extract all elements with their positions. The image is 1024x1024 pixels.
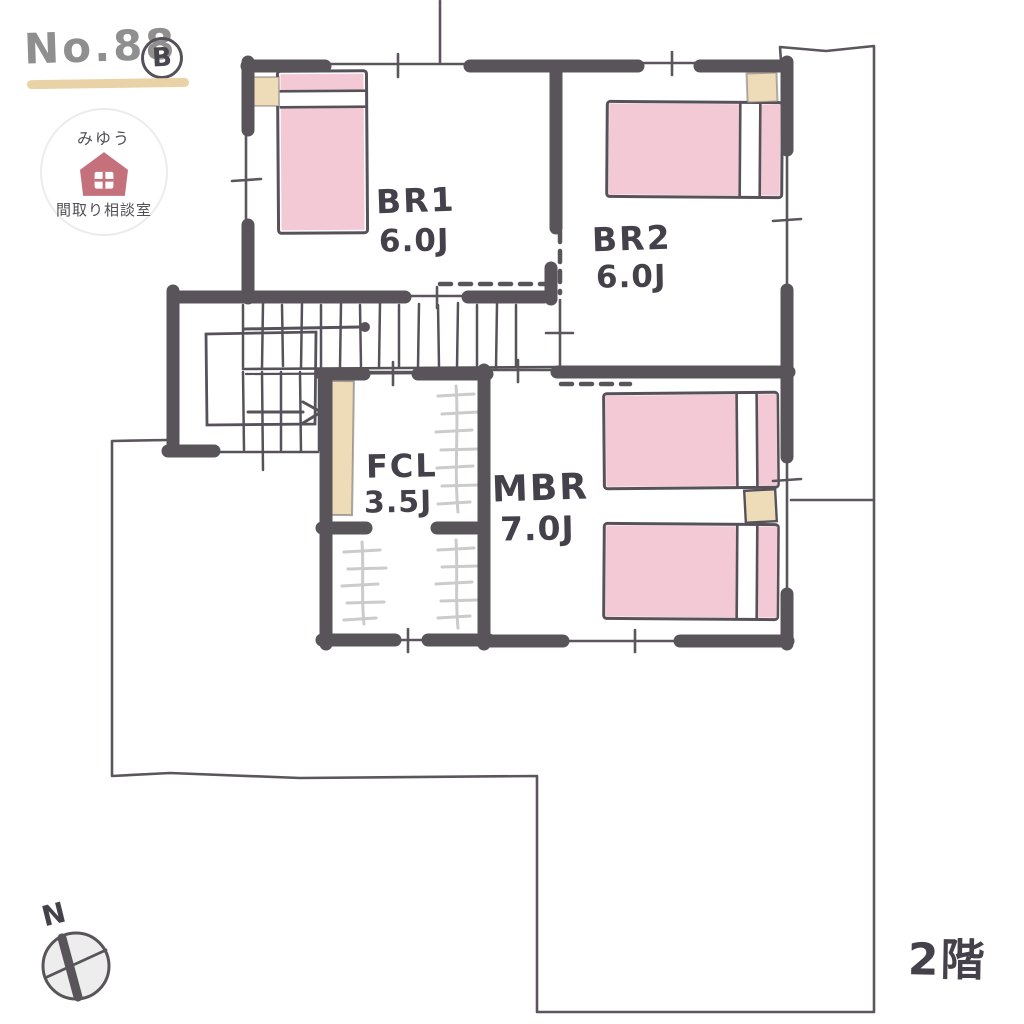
floor-plan-page: No.88 B みゆう 間取り相談室 BR1 6.0J BR2 6.0J FCL… bbox=[0, 0, 1024, 1024]
nightstand-br2 bbox=[747, 72, 778, 102]
logo-name-bottom: 間取り相談室 bbox=[56, 199, 152, 220]
room-size-br1: 6.0J bbox=[379, 222, 450, 259]
room-label-br1: BR1 bbox=[375, 180, 456, 222]
staircase bbox=[206, 303, 557, 470]
stair-rail-end-dot bbox=[360, 322, 370, 332]
room-size-fcl: 3.5J bbox=[364, 484, 433, 520]
nightstand-mbr bbox=[744, 489, 777, 523]
room-label-br2: BR2 bbox=[591, 218, 672, 260]
room-size-mbr: 7.0J bbox=[500, 508, 575, 548]
bed-br2 bbox=[607, 101, 783, 197]
room-label-mbr: MBR bbox=[491, 466, 589, 510]
stair-direction-arrow bbox=[248, 402, 321, 423]
floor-label: 2階 bbox=[907, 923, 987, 988]
house-icon bbox=[80, 151, 128, 197]
compass bbox=[43, 933, 109, 999]
bed-br1 bbox=[277, 71, 367, 234]
bed-mbr-1 bbox=[604, 392, 779, 489]
room-size-br2: 6.0J bbox=[596, 258, 667, 295]
logo-name-top: みゆう bbox=[77, 125, 131, 149]
fcl-door-panel bbox=[329, 381, 354, 515]
bed-mbr-2 bbox=[604, 523, 779, 619]
stair-treads-upper bbox=[243, 303, 516, 368]
company-logo: みゆう 間取り相談室 bbox=[40, 108, 168, 236]
room-label-fcl: FCL bbox=[366, 446, 438, 485]
